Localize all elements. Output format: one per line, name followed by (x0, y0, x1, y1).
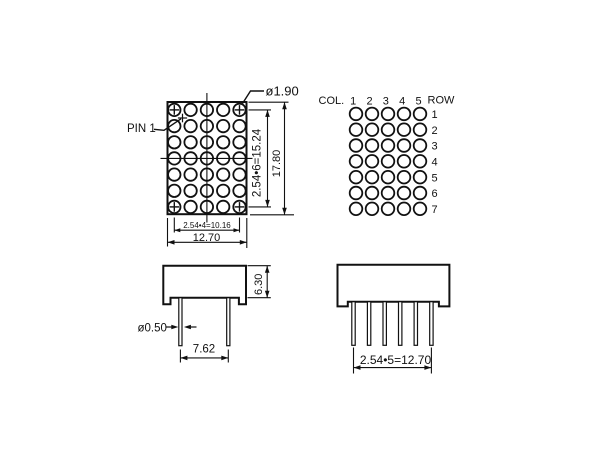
svg-text:6.30: 6.30 (253, 274, 265, 295)
svg-text:2.54•5=12.70: 2.54•5=12.70 (360, 353, 432, 367)
svg-text:7.62: 7.62 (193, 344, 215, 356)
svg-text:COL.: COL. (319, 95, 345, 107)
svg-text:PIN 1: PIN 1 (127, 123, 156, 135)
svg-text:1: 1 (432, 109, 438, 121)
svg-text:7: 7 (432, 204, 438, 216)
svg-text:1: 1 (350, 96, 356, 108)
svg-text:3: 3 (383, 96, 389, 108)
svg-text:2: 2 (432, 125, 438, 137)
svg-text:3: 3 (432, 141, 438, 153)
svg-text:4: 4 (399, 96, 405, 108)
svg-text:5: 5 (415, 96, 421, 108)
svg-text:6: 6 (432, 188, 438, 200)
svg-text:12.70: 12.70 (193, 232, 221, 244)
svg-text:2: 2 (366, 96, 372, 108)
svg-text:ø1.90: ø1.90 (266, 84, 299, 99)
svg-text:2.54•6=15.24: 2.54•6=15.24 (252, 128, 264, 197)
svg-text:ø0.50: ø0.50 (138, 323, 167, 335)
svg-text:17.80: 17.80 (271, 150, 283, 178)
svg-text:5: 5 (432, 172, 438, 184)
svg-text:4: 4 (432, 157, 438, 169)
svg-text:ROW: ROW (428, 95, 456, 107)
svg-text:2.54•4=10.16: 2.54•4=10.16 (183, 221, 231, 230)
